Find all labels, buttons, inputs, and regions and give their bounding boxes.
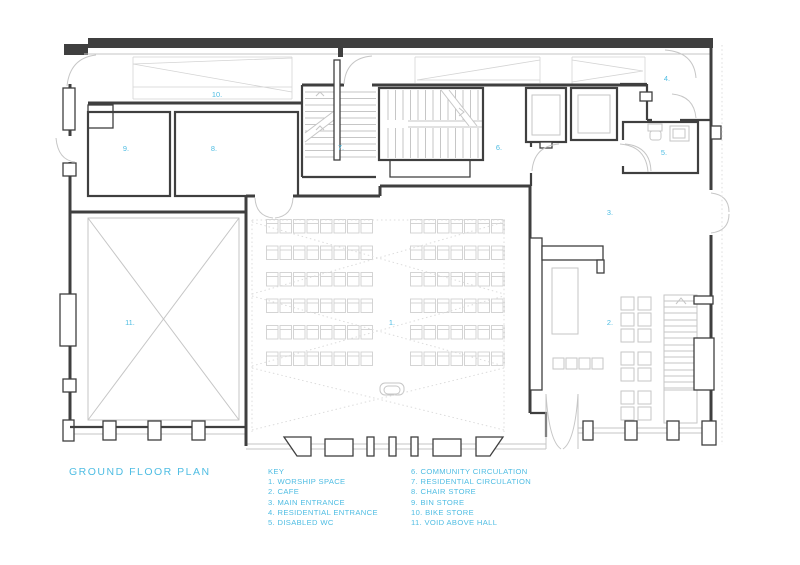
cafe-stair: [664, 295, 697, 423]
room-label-bin-store: 9.: [123, 144, 129, 153]
chair-rows: [266, 219, 505, 366]
key-item: 8. CHAIR STORE: [411, 487, 531, 497]
room-label-cafe: 2.: [607, 318, 613, 327]
cafe-tables: [621, 297, 651, 420]
door-swings: [56, 50, 729, 449]
key-item: 2. CAFE: [268, 487, 378, 497]
cafe-counter: [552, 268, 603, 369]
room-label-residential-entrance: 4.: [664, 74, 670, 83]
key-item: 11. VOID ABOVE HALL: [411, 518, 531, 528]
key-column-right: 6. COMMUNITY CIRCULATION 7. RESIDENTIAL …: [411, 467, 531, 528]
podium: [380, 383, 404, 395]
key-item: 10. BIKE STORE: [411, 508, 531, 518]
key-item: 9. BIN STORE: [411, 498, 531, 508]
bike-rack-hatch: [133, 57, 645, 99]
key-item: 5. DISABLED WC: [268, 518, 378, 528]
key-item: 4. RESIDENTIAL ENTRANCE: [268, 508, 378, 518]
room-label-chair-store: 8.: [211, 144, 217, 153]
key-item: 1. WORSHIP SPACE: [268, 477, 378, 487]
room-label-disabled-wc: 5.: [661, 148, 667, 157]
room-label-bike-store: 10.: [212, 90, 222, 99]
key-item: 7. RESIDENTIAL CIRCULATION: [411, 477, 531, 487]
front-piers: [284, 421, 716, 456]
key-item: 6. COMMUNITY CIRCULATION: [411, 467, 531, 477]
wc-fixtures: [648, 124, 689, 141]
floor-plan-drawing: 1. 2. 3. 4. 5. 6. 7. 8. 9. 10. 11.: [0, 0, 800, 565]
room-label-residential-circulation: 7.: [338, 143, 344, 152]
room-label-worship-space: 1.: [389, 318, 395, 327]
drawing-sheet: 1. 2. 3. 4. 5. 6. 7. 8. 9. 10. 11. GROUN…: [0, 0, 800, 565]
page-title: GROUND FLOOR PLAN: [69, 466, 211, 478]
community-stair: [388, 90, 483, 158]
key-heading: KEY: [268, 467, 378, 477]
key-column-left: KEY 1. WORSHIP SPACE 2. CAFE 3. MAIN ENT…: [268, 467, 378, 528]
room-label-void-above-hall: 11.: [125, 318, 135, 327]
key-item: 3. MAIN ENTRANCE: [268, 498, 378, 508]
void-above-hall: [88, 218, 239, 420]
room-label-main-entrance: 3.: [607, 208, 613, 217]
room-label-community-circulation: 6.: [496, 143, 502, 152]
